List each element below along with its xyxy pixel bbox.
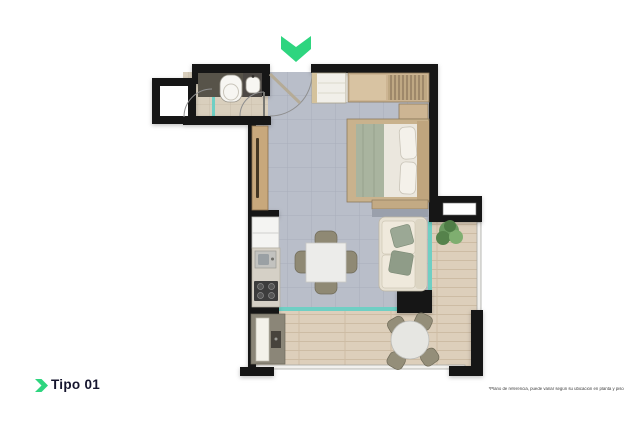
unit-type-label: Tipo 01 bbox=[51, 377, 100, 392]
pillow bbox=[399, 162, 417, 195]
wall-right bbox=[429, 64, 438, 222]
dining-table bbox=[306, 243, 346, 282]
terrace-table bbox=[391, 321, 429, 359]
nightstand bbox=[399, 104, 428, 119]
entry-closet bbox=[312, 73, 346, 103]
disclaimer-text: *Plano de referencia, puede variar según… bbox=[489, 387, 624, 391]
glass-door-terrace bbox=[279, 307, 397, 311]
sofa-pillow bbox=[388, 250, 413, 275]
toilet bbox=[220, 75, 242, 102]
floor-plan bbox=[0, 0, 640, 427]
dresser bbox=[372, 200, 428, 217]
railing-right bbox=[477, 222, 481, 312]
chevron-right-icon bbox=[35, 379, 48, 392]
kitchen-sink bbox=[255, 251, 276, 268]
bedroom bbox=[347, 73, 429, 202]
tall-cabinet bbox=[252, 126, 268, 210]
bed-blanket bbox=[356, 124, 384, 197]
cooktop bbox=[254, 281, 278, 301]
bathroom-entry-pier bbox=[262, 64, 270, 96]
pillow bbox=[399, 126, 417, 159]
wardrobe bbox=[348, 73, 429, 102]
bed bbox=[347, 119, 429, 202]
sink bbox=[246, 77, 260, 93]
glass-wall-living-terrace bbox=[428, 221, 432, 290]
railing-bottom bbox=[254, 365, 465, 369]
sofa bbox=[379, 217, 427, 291]
headboard bbox=[417, 121, 429, 200]
terrace-bench bbox=[251, 314, 285, 364]
floorplan-page: Tipo 01 *Plano de referencia, puede vari… bbox=[0, 0, 640, 427]
entrance-arrow-icon bbox=[281, 36, 311, 62]
terrace-pier bbox=[397, 290, 432, 313]
